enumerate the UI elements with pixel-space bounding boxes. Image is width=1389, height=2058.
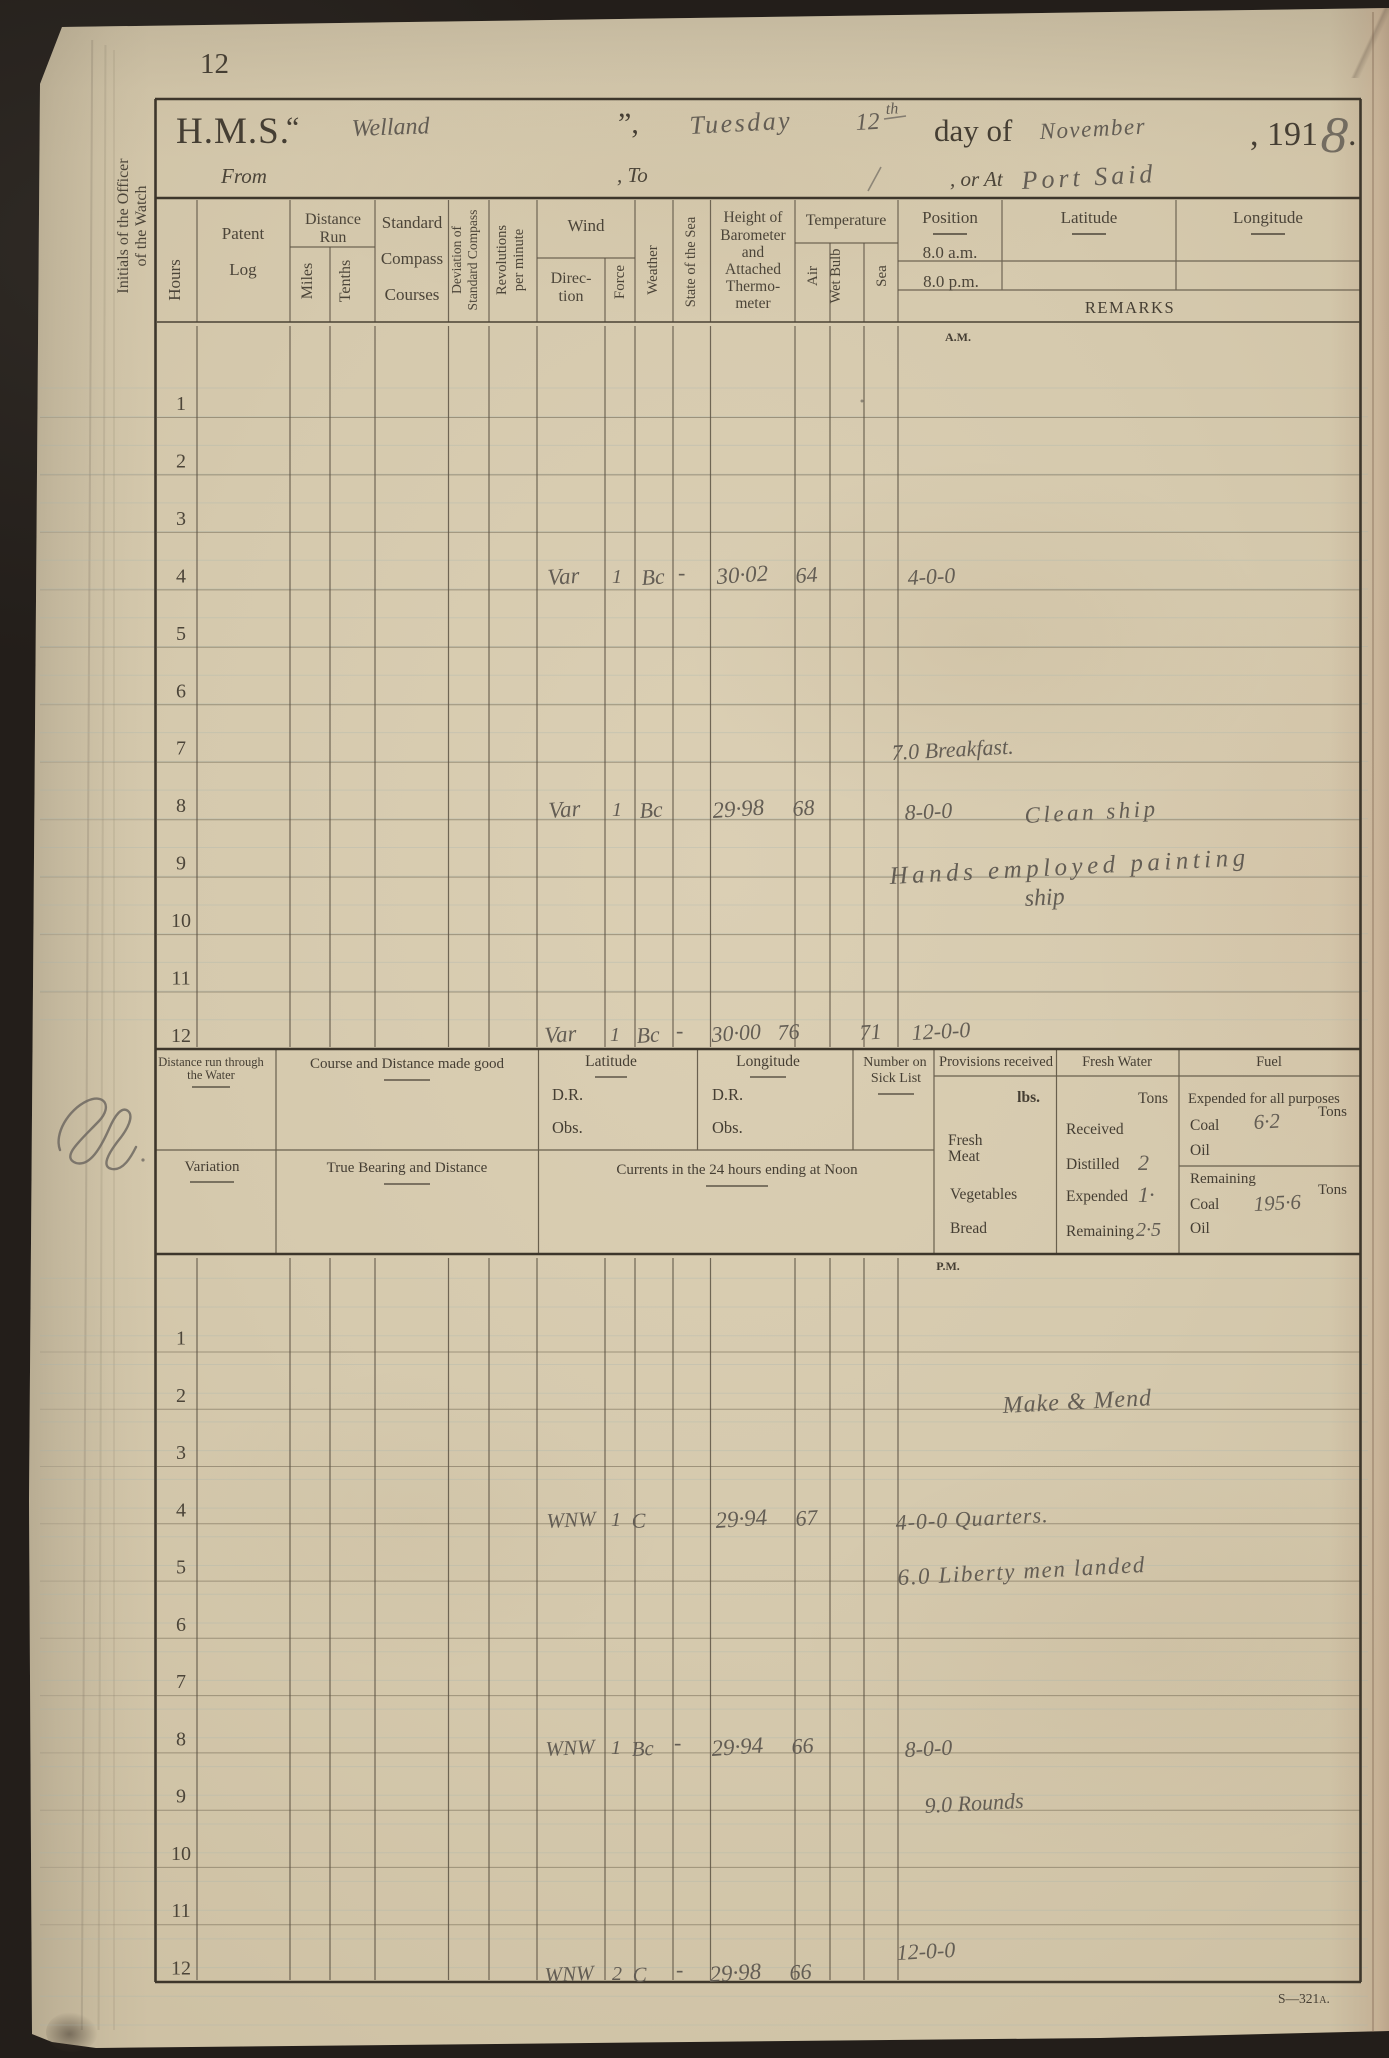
svg-text:4: 4 xyxy=(176,565,186,587)
svg-text:12: 12 xyxy=(171,1957,191,1979)
svg-text:th: th xyxy=(885,100,898,118)
svg-text:-: - xyxy=(674,1730,681,1755)
svg-text:2: 2 xyxy=(176,450,186,472)
svg-text:Bc: Bc xyxy=(641,563,666,590)
svg-text:November: November xyxy=(1038,113,1147,144)
svg-text:Miles: Miles xyxy=(299,263,316,299)
svg-text:4-0-0: 4-0-0 xyxy=(907,563,956,590)
svg-text:A.M.: A.M. xyxy=(945,330,971,344)
svg-text:Currents in the 24 hours endin: Currents in the 24 hours ending at Noon xyxy=(616,1162,858,1178)
svg-text:Tons: Tons xyxy=(1318,1104,1347,1120)
svg-text:Fuel: Fuel xyxy=(1256,1054,1282,1070)
svg-text:68: 68 xyxy=(792,795,816,821)
svg-text:12: 12 xyxy=(855,109,880,136)
svg-text:Fresh: Fresh xyxy=(948,1132,983,1149)
svg-text:Bc: Bc xyxy=(639,796,664,823)
svg-text:9: 9 xyxy=(176,853,186,875)
svg-text:6.0 Liberty men landed: 6.0 Liberty men landed xyxy=(897,1552,1147,1590)
svg-text:WNW: WNW xyxy=(544,1960,597,1987)
svg-text:P.M.: P.M. xyxy=(936,1259,960,1273)
svg-text:Fresh Water: Fresh Water xyxy=(1082,1054,1152,1070)
svg-text:Var: Var xyxy=(547,563,582,590)
svg-text:29·94: 29·94 xyxy=(711,1732,764,1761)
svg-text:Weather: Weather xyxy=(645,245,661,295)
svg-text:6: 6 xyxy=(176,680,186,702)
svg-text:7.0 Breakfast.: 7.0 Breakfast. xyxy=(891,734,1014,765)
svg-text:Temperature: Temperature xyxy=(806,212,887,229)
svg-text:30·02: 30·02 xyxy=(715,560,769,589)
svg-text:C: C xyxy=(631,1508,647,1533)
svg-text:Wind: Wind xyxy=(567,216,605,235)
svg-text:and: and xyxy=(742,244,765,261)
svg-text:C: C xyxy=(632,1962,648,1987)
svg-text:10: 10 xyxy=(171,910,191,932)
svg-text:Deviation of: Deviation of xyxy=(449,226,464,294)
svg-text:6: 6 xyxy=(176,1614,186,1636)
svg-text:30·00: 30·00 xyxy=(710,1019,762,1047)
svg-text:67: 67 xyxy=(795,1504,820,1531)
svg-text:Oil: Oil xyxy=(1190,1142,1210,1159)
svg-text:Bc: Bc xyxy=(631,1736,655,1761)
svg-text:WNW: WNW xyxy=(545,1734,598,1761)
svg-text:Make & Mend: Make & Mend xyxy=(1001,1385,1153,1419)
svg-text:3: 3 xyxy=(176,508,186,530)
svg-text:S—321A.: S—321A. xyxy=(1278,1991,1330,2006)
svg-text:-: - xyxy=(676,1018,683,1043)
svg-text:29·98: 29·98 xyxy=(709,1958,763,1987)
svg-text:8-0-0: 8-0-0 xyxy=(904,1735,953,1762)
svg-text:11: 11 xyxy=(171,1900,190,1922)
svg-text:D.R.: D.R. xyxy=(712,1085,743,1104)
svg-text:7: 7 xyxy=(176,738,186,760)
svg-text:2: 2 xyxy=(176,1385,186,1407)
svg-text:Expended: Expended xyxy=(1066,1188,1128,1205)
svg-text:Coal: Coal xyxy=(1190,1117,1219,1134)
svg-text:Meat: Meat xyxy=(948,1148,981,1165)
svg-text:tion: tion xyxy=(559,288,584,305)
svg-text:Run: Run xyxy=(320,229,347,246)
svg-text:Distance: Distance xyxy=(305,211,361,228)
svg-text:8-0-0: 8-0-0 xyxy=(904,798,953,825)
svg-text:Standard Compass: Standard Compass xyxy=(465,210,480,311)
svg-text:Sea: Sea xyxy=(874,265,890,287)
svg-text:1: 1 xyxy=(612,566,622,588)
svg-text:Course and Distance made good: Course and Distance made good xyxy=(310,1056,505,1072)
svg-text:5: 5 xyxy=(176,1557,186,1579)
svg-text:8: 8 xyxy=(1319,106,1350,165)
svg-text:1·: 1· xyxy=(1138,1182,1155,1207)
svg-text:1: 1 xyxy=(176,393,186,415)
svg-text:Attached: Attached xyxy=(725,261,781,278)
svg-text:1: 1 xyxy=(612,799,622,821)
svg-text:ship: ship xyxy=(1024,884,1065,912)
svg-text:5: 5 xyxy=(176,623,186,645)
svg-text:12: 12 xyxy=(171,1025,191,1047)
svg-text:Standard: Standard xyxy=(382,213,443,232)
svg-text:Sick List: Sick List xyxy=(871,1071,921,1086)
svg-text:Longitude: Longitude xyxy=(736,1053,800,1070)
svg-text:1: 1 xyxy=(611,1737,621,1759)
svg-text:, or At: , or At xyxy=(950,167,1004,191)
svg-text:Clean ship: Clean ship xyxy=(1024,796,1159,828)
svg-text:Tenths: Tenths xyxy=(337,260,354,302)
svg-text:REMARKS: REMARKS xyxy=(1085,298,1175,317)
svg-text:.: . xyxy=(1348,116,1357,153)
svg-text:“: “ xyxy=(286,111,299,144)
svg-text:1: 1 xyxy=(610,1024,620,1046)
svg-text:Oil: Oil xyxy=(1190,1220,1210,1237)
svg-text:Tons: Tons xyxy=(1318,1182,1347,1198)
svg-text:Longitude: Longitude xyxy=(1233,208,1303,227)
svg-text:8.0 p.m.: 8.0 p.m. xyxy=(923,272,979,291)
svg-text:2: 2 xyxy=(612,1963,622,1985)
svg-text:Bread: Bread xyxy=(950,1220,987,1237)
svg-text:lbs.: lbs. xyxy=(1017,1089,1040,1106)
svg-text:9: 9 xyxy=(176,1786,186,1808)
svg-text:7: 7 xyxy=(176,1671,186,1693)
svg-text:195·6: 195·6 xyxy=(1253,1190,1302,1216)
svg-text:Latitude: Latitude xyxy=(1061,208,1118,227)
svg-text:True Bearing and Distance: True Bearing and Distance xyxy=(327,1160,488,1176)
svg-text:11: 11 xyxy=(171,968,190,990)
svg-text:Variation: Variation xyxy=(185,1159,240,1175)
svg-text:Welland: Welland xyxy=(351,113,431,142)
svg-text:Provisions received: Provisions received xyxy=(939,1054,1054,1070)
svg-text:-: - xyxy=(678,560,685,585)
svg-text:4: 4 xyxy=(176,1499,186,1521)
svg-text:12-0-0: 12-0-0 xyxy=(896,1937,956,1965)
svg-text:Wet Bulb: Wet Bulb xyxy=(828,249,844,304)
svg-text:, To: , To xyxy=(617,163,648,187)
svg-text:Courses: Courses xyxy=(385,285,440,304)
svg-text:meter: meter xyxy=(735,295,771,312)
svg-text:8: 8 xyxy=(176,795,186,817)
svg-text:”,: ”, xyxy=(618,107,639,140)
svg-text:H.M.S.: H.M.S. xyxy=(176,111,290,152)
svg-text:9.0 Rounds: 9.0 Rounds xyxy=(924,1788,1024,1818)
svg-text:Compass: Compass xyxy=(381,249,443,268)
svg-text:Number on: Number on xyxy=(863,1055,926,1070)
svg-text:29·98: 29·98 xyxy=(712,794,766,823)
svg-text:Barometer: Barometer xyxy=(720,227,786,244)
svg-text:Obs.: Obs. xyxy=(712,1118,743,1137)
svg-text:Distance run through: Distance run through xyxy=(158,1055,264,1069)
svg-text:per minute: per minute xyxy=(511,229,527,291)
svg-text:2·5: 2·5 xyxy=(1136,1219,1161,1241)
svg-text:Initials of the Officer: Initials of the Officer xyxy=(115,158,132,294)
svg-text:64: 64 xyxy=(795,562,819,588)
svg-text:Revolutions: Revolutions xyxy=(494,225,510,295)
svg-text:Force: Force xyxy=(612,265,628,299)
svg-text:71: 71 xyxy=(859,1019,883,1045)
svg-text:Port Said: Port Said xyxy=(1020,159,1157,195)
svg-text:, 191: , 191 xyxy=(1250,116,1318,153)
svg-text:Height of: Height of xyxy=(724,209,784,226)
svg-text:Direc-: Direc- xyxy=(551,270,592,287)
svg-text:Hands employed painting: Hands employed painting xyxy=(888,844,1250,890)
svg-text:Received: Received xyxy=(1066,1121,1124,1138)
svg-text:12-0-0: 12-0-0 xyxy=(911,1017,971,1045)
svg-text:D.R.: D.R. xyxy=(552,1085,583,1104)
svg-text:Var: Var xyxy=(544,1021,579,1048)
svg-text:66: 66 xyxy=(789,1959,813,1985)
svg-text:From: From xyxy=(220,164,267,188)
svg-text:Remaining: Remaining xyxy=(1066,1223,1134,1240)
svg-text:8.0 a.m.: 8.0 a.m. xyxy=(923,243,978,262)
svg-text:Coal: Coal xyxy=(1190,1196,1219,1213)
svg-text:2: 2 xyxy=(1138,1150,1149,1175)
svg-text:State of the Sea: State of the Sea xyxy=(683,216,699,307)
svg-text:Air: Air xyxy=(805,266,821,286)
svg-text:Hours: Hours xyxy=(165,259,184,301)
svg-text:-: - xyxy=(676,1957,683,1982)
svg-text:Distilled: Distilled xyxy=(1066,1156,1120,1173)
svg-text:29·94: 29·94 xyxy=(715,1504,768,1533)
svg-text:4-0-0 Quarters.: 4-0-0 Quarters. xyxy=(895,1502,1049,1535)
svg-text:8: 8 xyxy=(176,1728,186,1750)
svg-text:6·2: 6·2 xyxy=(1253,1109,1281,1134)
svg-text:Log: Log xyxy=(229,260,257,279)
svg-text:Bc: Bc xyxy=(636,1021,661,1048)
svg-text:of the Watch: of the Watch xyxy=(133,185,150,266)
svg-text:Tons: Tons xyxy=(1138,1090,1168,1107)
svg-text:Remaining: Remaining xyxy=(1190,1171,1256,1187)
svg-text:76: 76 xyxy=(777,1019,801,1045)
svg-text:Tuesday: Tuesday xyxy=(689,106,793,140)
svg-text:the Water: the Water xyxy=(187,1068,236,1082)
svg-text:3: 3 xyxy=(176,1442,186,1464)
svg-text:day of: day of xyxy=(934,113,1013,148)
svg-text:Patent: Patent xyxy=(222,224,265,243)
svg-text:Vegetables: Vegetables xyxy=(950,1186,1017,1203)
svg-text:Var: Var xyxy=(548,796,583,823)
svg-text:1: 1 xyxy=(611,1509,621,1531)
svg-text:1: 1 xyxy=(176,1328,186,1350)
svg-text:10: 10 xyxy=(171,1843,191,1865)
svg-text:66: 66 xyxy=(791,1733,815,1759)
svg-text:Position: Position xyxy=(922,208,978,227)
svg-text:Thermo-: Thermo- xyxy=(726,278,780,295)
svg-text:Obs.: Obs. xyxy=(552,1118,583,1137)
svg-text:WNW: WNW xyxy=(546,1506,599,1533)
svg-text:Latitude: Latitude xyxy=(585,1053,637,1070)
